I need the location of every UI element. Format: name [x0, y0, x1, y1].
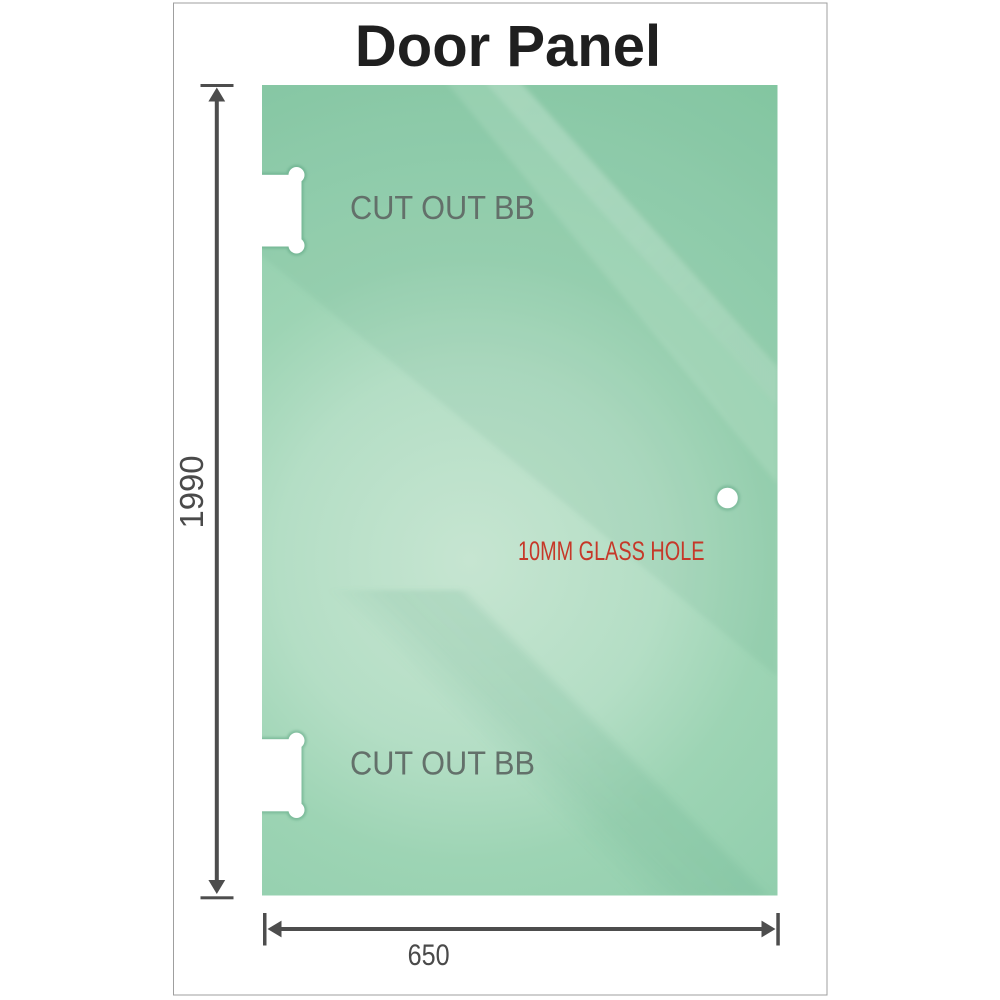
- svg-text:Door Panel: Door Panel: [355, 14, 661, 79]
- svg-text:CUT OUT BB: CUT OUT BB: [350, 189, 535, 226]
- svg-text:1990: 1990: [173, 456, 210, 529]
- svg-text:CUT OUT BB: CUT OUT BB: [350, 745, 535, 782]
- svg-text:650: 650: [408, 940, 450, 972]
- svg-text:10MM GLASS HOLE: 10MM GLASS HOLE: [518, 536, 705, 566]
